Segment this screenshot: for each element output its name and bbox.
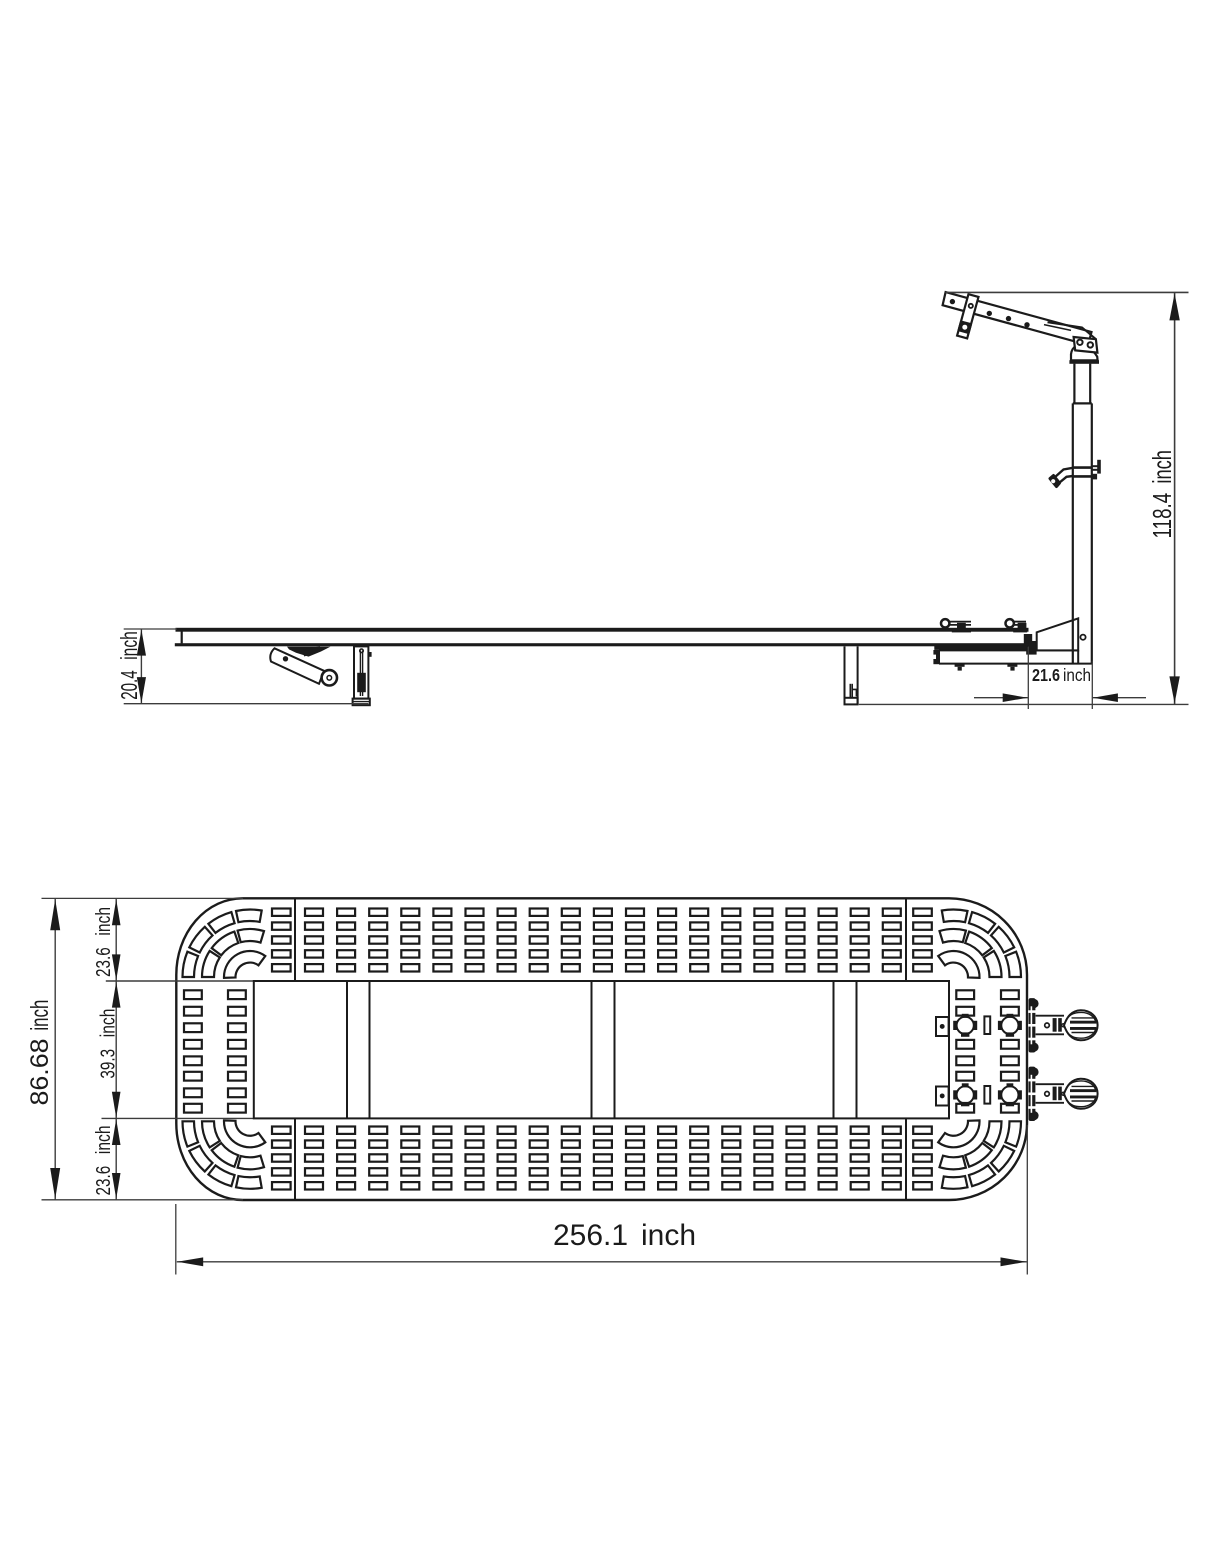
svg-text:inch: inch bbox=[116, 631, 142, 660]
svg-text:inch: inch bbox=[98, 1009, 120, 1038]
svg-text:21.6: 21.6 bbox=[1032, 665, 1060, 685]
svg-text:118.4: 118.4 bbox=[1147, 493, 1177, 539]
svg-text:23.6: 23.6 bbox=[93, 947, 115, 977]
svg-text:inch: inch bbox=[93, 907, 115, 936]
svg-text:inch: inch bbox=[1063, 665, 1091, 685]
svg-text:39.3: 39.3 bbox=[98, 1049, 120, 1079]
svg-text:256.1: 256.1 bbox=[553, 1219, 628, 1252]
svg-text:inch: inch bbox=[1147, 450, 1177, 484]
svg-text:86.68: 86.68 bbox=[26, 1039, 54, 1106]
svg-text:23.6: 23.6 bbox=[93, 1166, 115, 1196]
svg-text:inch: inch bbox=[641, 1219, 696, 1252]
svg-text:inch: inch bbox=[26, 1000, 54, 1031]
svg-text:20.4: 20.4 bbox=[116, 670, 142, 700]
svg-text:inch: inch bbox=[93, 1126, 115, 1155]
